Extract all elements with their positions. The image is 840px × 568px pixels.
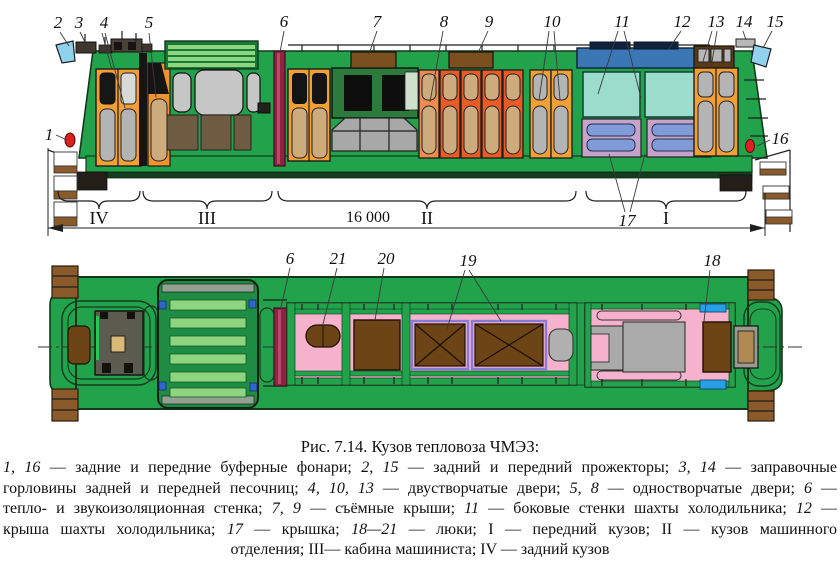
arrow-right — [750, 224, 765, 232]
roof-gap-post — [577, 303, 585, 385]
hatch-20 — [354, 320, 400, 370]
caption-text: горловины задней и передней песочниц; — [3, 480, 308, 497]
roof-handrail-posts — [302, 45, 554, 51]
caption-line: 1, 16 — задние и передние буферные фонар… — [0, 458, 840, 479]
machine-gray-hood — [332, 118, 417, 151]
panel-green-slit — [96, 316, 99, 360]
cab-window-large — [195, 70, 243, 115]
panel-foot — [102, 363, 111, 373]
section-label-iii: III — [198, 208, 216, 228]
leaf-panel — [443, 74, 457, 100]
panel-tab — [127, 312, 135, 319]
gray-plate-large — [623, 322, 685, 372]
blue-latch — [700, 304, 726, 312]
side-callout-11: 11 — [614, 12, 630, 31]
caption-text: — двустворчатые двери; — [374, 480, 570, 497]
figure-title: Рис. 7.14. Кузов тепловоза ЧМЭЗ: — [0, 437, 840, 457]
side-view: IV III 16 000 II I 1 2 — [45, 12, 792, 236]
side-callout-3: 3 — [74, 13, 84, 32]
corner-step — [52, 389, 78, 421]
panel-foot — [124, 363, 133, 373]
removable-roof-right — [449, 52, 493, 68]
caption-text: — заправочные — [716, 459, 837, 476]
side-callout-2: 2 — [54, 13, 63, 32]
caption-ref-number: 17 — [227, 521, 243, 538]
side-callout-5: 5 — [145, 13, 154, 32]
roof-stripe — [170, 388, 246, 397]
front-sand-filler — [736, 39, 755, 47]
leaf-panel — [422, 74, 436, 100]
engine-door-leaves — [419, 70, 523, 158]
leaf-panel — [554, 106, 568, 154]
leader-9 — [478, 31, 488, 53]
caption-text: тепло- и звукоизоляционная стенка; — [3, 500, 272, 517]
section-label-i: I — [663, 208, 669, 228]
blue-latch — [700, 380, 726, 389]
leaf-panel — [443, 106, 457, 154]
caption-text: — задний и передний прожекторы; — [399, 459, 679, 476]
cab-side-box — [258, 103, 270, 113]
gray-plate-notch — [591, 334, 609, 362]
cab-window-small-left — [173, 73, 191, 112]
side-callout-4: 4 — [100, 13, 109, 32]
roof-stripe — [170, 300, 246, 310]
caption-text: — люки; I — передний кузов; II — кузов м… — [397, 521, 837, 538]
step-tread — [763, 193, 789, 199]
front-step-box — [720, 175, 752, 191]
step-tread — [54, 166, 77, 173]
plan-callout-21: 21 — [330, 249, 347, 268]
caption-ref-number: 6 — [804, 480, 812, 497]
leaf-panel — [485, 106, 499, 154]
corner-fastener — [159, 382, 166, 390]
leader-15 — [763, 31, 772, 48]
caption-ref-number: 12 — [796, 500, 812, 517]
leaf-panel — [422, 106, 436, 154]
section-label-ii: II — [421, 208, 433, 228]
radiator-side-wall — [583, 72, 640, 117]
caption-text: отделения; III— кабина машиниста; IV — з… — [231, 541, 610, 558]
caption-text: — крышка; — [243, 521, 351, 538]
side-callout-15: 15 — [767, 12, 784, 31]
door-panel — [100, 109, 115, 161]
leader-3 — [80, 32, 85, 42]
roof-rail-top — [295, 309, 569, 314]
insulation-wall-light — [277, 53, 280, 164]
caption-ref-number: 18—21 — [351, 521, 397, 538]
caption-ref-number: 11 — [464, 500, 479, 517]
caption-ref-number: 3, 14 — [679, 459, 716, 476]
leaf-panel — [506, 74, 520, 100]
side-callout-17: 17 — [619, 211, 638, 230]
front-buffer-light — [746, 140, 755, 153]
leaf-panel — [506, 106, 520, 154]
corner-step — [748, 391, 774, 421]
side-callout-7: 7 — [373, 12, 383, 31]
cab-lower-panel — [167, 115, 198, 150]
caption-ref-number: 4, 10, 13 — [308, 480, 374, 497]
plan-callout-19: 19 — [460, 251, 478, 270]
side-callout-6: 6 — [280, 12, 289, 31]
cab-lower-panel — [234, 115, 251, 150]
roof-rail-bottom — [295, 371, 569, 376]
dimension-label: 16 000 — [346, 209, 390, 226]
side-callout-9: 9 — [485, 12, 494, 31]
caption-ref-number: 5, 8 — [570, 480, 599, 497]
caption-line: тепло- и звукоизоляционная стенка; 7, 9 … — [0, 499, 840, 520]
roof-stripe — [170, 372, 246, 382]
roof-stripe — [170, 318, 246, 328]
underframe-edge — [86, 172, 752, 178]
corner-step — [748, 270, 774, 300]
cab-lower-panel — [201, 115, 231, 150]
step-tread — [766, 217, 792, 224]
caption-ref-number: 7, 9 — [272, 500, 301, 517]
roof-mullion — [402, 303, 410, 385]
door-panel — [292, 108, 307, 158]
cover-slat — [587, 139, 635, 151]
nose-brown-insert — [738, 331, 754, 363]
side-callout-8: 8 — [440, 12, 449, 31]
leaf-panel — [464, 74, 478, 100]
rear-sand-filler — [76, 42, 96, 53]
filler-cap — [724, 49, 731, 62]
roof-mullion — [342, 303, 350, 385]
door-window — [121, 73, 136, 104]
leaf-panel — [554, 74, 568, 100]
step-tread — [760, 169, 786, 175]
roof-stripe — [170, 336, 246, 346]
side-callout-16: 16 — [772, 129, 790, 148]
caption-text: — одностворчатые двери; — [599, 480, 804, 497]
roof-frame-left — [585, 303, 591, 387]
caption-text: — съёмные крыши; — [301, 500, 464, 517]
caption-line: крыша шахты холодильника; 17 — крышка; 1… — [0, 520, 840, 541]
door-panel — [312, 108, 327, 158]
step-tread — [54, 217, 77, 226]
caption-text: — — [812, 500, 837, 517]
engine-roof-section-2 — [585, 303, 735, 389]
caption-text: крыша шахты холодильника; — [3, 521, 227, 538]
caption-line: отделения; III— кабина машиниста; IV — з… — [0, 540, 840, 561]
machine-side-panel — [405, 72, 418, 110]
roof-cap-b1 — [114, 42, 122, 50]
cab-roof-endband — [162, 284, 254, 292]
plan-callout-18: 18 — [704, 251, 722, 270]
roof-stripe — [170, 354, 246, 364]
step — [54, 176, 77, 191]
rear-projector — [56, 41, 75, 63]
brace-section-i — [586, 191, 746, 209]
engine-double-door — [288, 69, 330, 161]
panel-tan-box — [111, 336, 125, 352]
door-window — [719, 72, 734, 97]
caption-text: — боковые стенки шахты холодильника; — [479, 500, 796, 517]
side-callout-13: 13 — [708, 12, 725, 31]
figure-caption: Рис. 7.14. Кузов тепловоза ЧМЭЗ: 1, 16 —… — [0, 437, 840, 561]
gray-duct — [549, 329, 573, 361]
side-callout-10: 10 — [544, 12, 562, 31]
door-panel — [719, 101, 734, 152]
corner-step — [52, 266, 78, 298]
front-ladder — [755, 150, 792, 232]
panel-tab — [100, 312, 108, 319]
plan-callout-6: 6 — [286, 249, 295, 268]
leaf-panel — [464, 106, 478, 154]
radiator-shaft-roof — [577, 48, 713, 68]
figure-page: IV III 16 000 II I 1 2 — [0, 0, 840, 568]
rear-ladder — [48, 150, 77, 226]
roof-frame-left — [287, 303, 295, 385]
caption-line: горловины задней и передней песочниц; 4,… — [0, 479, 840, 500]
door-window — [100, 73, 115, 104]
step — [54, 152, 77, 166]
brace-section-iii — [143, 191, 272, 209]
hatch-19-right — [472, 321, 546, 369]
roof-cap-dark — [590, 42, 630, 49]
side-callout-14: 14 — [736, 12, 754, 31]
engine-roof-section-1 — [287, 303, 577, 385]
coupler-hatch — [68, 326, 90, 364]
front-double-door — [694, 68, 738, 156]
door-panel — [121, 109, 136, 161]
hatch-19-left — [412, 321, 468, 369]
leaf-panel — [533, 106, 547, 154]
door-window — [698, 72, 713, 97]
roof-slot — [597, 311, 681, 320]
caption-ref-number: 1, 16 — [3, 459, 40, 476]
hatch-18 — [703, 322, 731, 372]
caption-ref-number: 2, 15 — [361, 459, 398, 476]
caption-text: — — [812, 480, 837, 497]
figure-drawing: IV III 16 000 II I 1 2 — [0, 0, 840, 436]
roof-frame-bottom — [287, 378, 577, 385]
corner-fastener — [159, 301, 166, 309]
engine-double-door-10 — [530, 70, 572, 158]
caption-text: — задние и передние буферные фонари; — [40, 459, 361, 476]
plan-callout-20: 20 — [378, 249, 396, 268]
side-callout-12: 12 — [674, 12, 692, 31]
cover-slat — [587, 124, 635, 136]
section-label-iv: IV — [90, 208, 109, 228]
door-window — [312, 73, 327, 104]
door-panel — [151, 99, 167, 161]
insulation-wall-plan-light — [278, 310, 281, 384]
leaf-panel — [485, 74, 499, 100]
door-window — [292, 73, 307, 104]
figure-caption-lines: 1, 16 — задние и передние буферные фонар… — [0, 458, 840, 561]
machine-window — [344, 75, 372, 111]
leader-6 — [280, 31, 284, 52]
cover-17-left — [582, 119, 641, 157]
door-panel — [698, 101, 713, 152]
roof-cap-b2 — [128, 42, 136, 50]
step — [54, 202, 77, 217]
corner-fastener — [250, 383, 257, 391]
side-callout-1: 1 — [45, 125, 54, 144]
brace-section-ii — [278, 191, 576, 209]
rear-step-box — [77, 172, 107, 190]
plan-view: 6 21 20 19 18 — [38, 249, 802, 421]
removable-roof-left — [351, 52, 396, 68]
insulation-wall-rear — [139, 53, 147, 166]
corner-fastener — [249, 300, 256, 308]
